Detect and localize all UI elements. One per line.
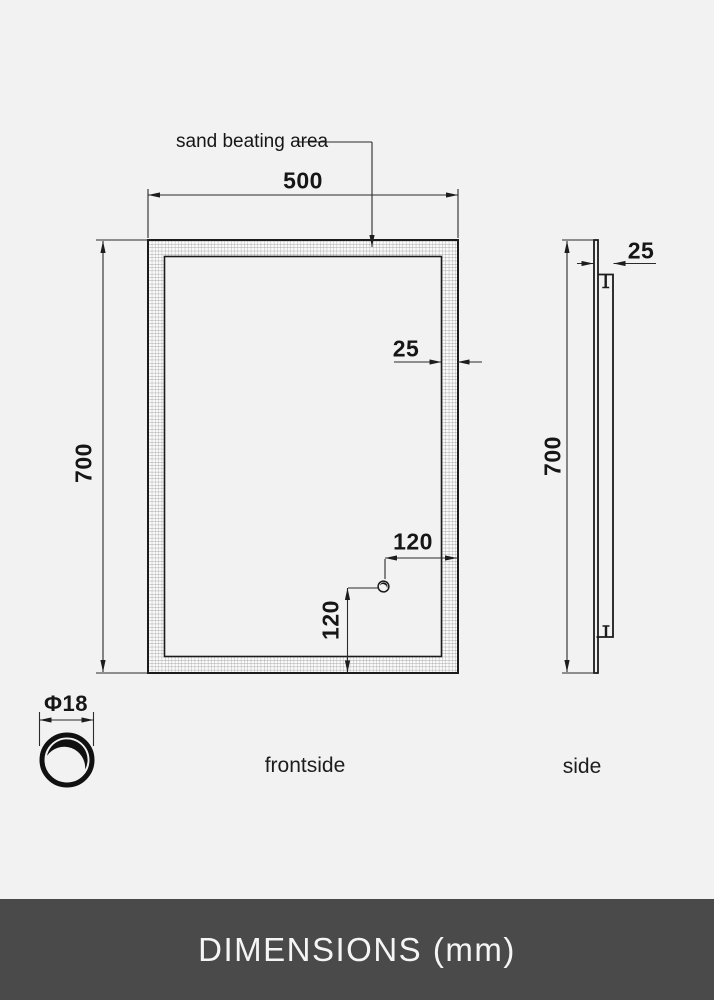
frame-hatch-area — [148, 240, 458, 673]
mirror-inner-edge — [165, 257, 442, 657]
touch-sensor-mark — [378, 581, 389, 592]
side-view — [562, 240, 656, 673]
side-height-dimension — [562, 240, 596, 673]
dimensions-diagram: sand beating area 500 700 25 120 120 25 … — [0, 0, 714, 1000]
side-depth-value: 25 — [628, 238, 655, 265]
mirror-outer-edge — [148, 240, 458, 673]
button-diameter-value: Φ18 — [44, 691, 88, 717]
side-view-caption: side — [563, 755, 602, 779]
button-offset-x-value: 120 — [393, 529, 433, 556]
footer-title: DIMENSIONS (mm) — [198, 931, 516, 969]
front-view-caption: frontside — [265, 754, 346, 778]
width-dimension — [148, 189, 458, 238]
button-detail — [40, 712, 94, 785]
height-dimension — [96, 240, 147, 673]
sand-beating-area-label: sand beating area — [176, 131, 328, 153]
front-width-value: 500 — [283, 168, 323, 195]
mounting-brackets — [602, 275, 609, 638]
front-frame-width-value: 25 — [393, 336, 420, 363]
side-back-frame — [597, 275, 614, 638]
front-height-value: 700 — [71, 443, 98, 483]
footer-banner: DIMENSIONS (mm) — [0, 899, 714, 1000]
side-glass-profile — [594, 240, 598, 673]
front-view — [96, 142, 482, 673]
side-height-value: 700 — [540, 436, 567, 476]
button-offset-y-value: 120 — [318, 600, 345, 640]
technical-drawing — [0, 0, 714, 1000]
dimmer-arc-icon — [47, 739, 88, 769]
